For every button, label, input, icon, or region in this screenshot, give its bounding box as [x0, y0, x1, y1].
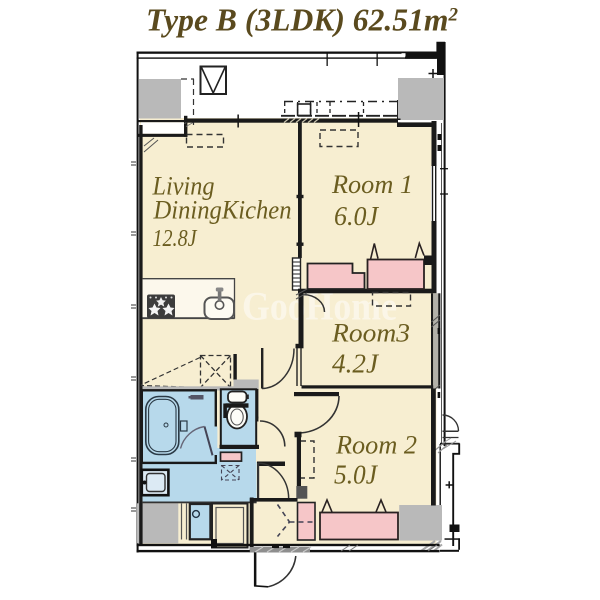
svg-text:DiningKichen: DiningKichen	[153, 196, 292, 225]
svg-text:Room3: Room3	[331, 319, 410, 348]
svg-text:Room 1: Room 1	[331, 170, 413, 199]
svg-text:Room 2: Room 2	[335, 431, 417, 460]
svg-text:5.0J: 5.0J	[334, 460, 379, 490]
svg-text:6.0J: 6.0J	[334, 201, 380, 231]
svg-text:4.2J: 4.2J	[332, 349, 380, 379]
svg-text:Type B (3LDK) 62.51m2: Type B (3LDK) 62.51m2	[146, 3, 459, 38]
svg-text:12.8J: 12.8J	[153, 226, 198, 252]
